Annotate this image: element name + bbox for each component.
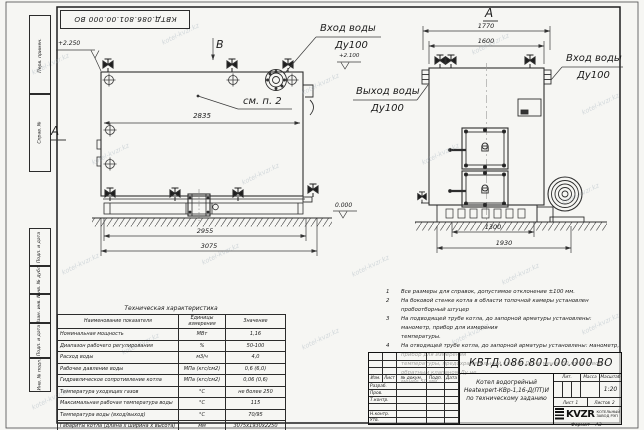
- outlet-flange-left: [422, 70, 429, 84]
- control-panel: [518, 99, 541, 116]
- spec-cell: Диапазон рабочего регулирования: [58, 340, 179, 352]
- note-number: 1: [386, 288, 401, 297]
- spec-cell: МВт: [179, 329, 226, 341]
- col-data: Дата: [445, 375, 459, 383]
- doc-number: КВТД.086.801.00.000 ВО: [459, 353, 622, 374]
- note-item: 3 На подводящей трубе котла, до запорной…: [386, 315, 620, 342]
- product-name-line: Heatexpert-КВр-1,16-Д(ПТ)И: [460, 387, 553, 395]
- frame-box-perv-primen: Перв. примен.: [29, 15, 51, 95]
- view-a-label: А: [485, 7, 493, 19]
- spec-cell: Гидравлическое сопротивление котла: [58, 375, 179, 387]
- inlet-water-dn-1: Ду100: [335, 41, 368, 51]
- spec-cell: Габариты котла (длина х ширина х высота): [58, 421, 179, 430]
- spec-cell: 115: [226, 398, 286, 410]
- spec-cell: 70/95: [226, 409, 286, 421]
- dim-1300-label: 1300: [473, 224, 513, 231]
- inlet-water-label-2: Вход воды: [566, 54, 622, 64]
- inlet-flange-right: [544, 70, 551, 84]
- dim-2835-label: 2835: [180, 113, 224, 120]
- outlet-water-label: Выход воды: [356, 87, 420, 97]
- dim-1600-label: 1600: [466, 38, 506, 45]
- row-utv: Утв.: [369, 418, 397, 424]
- dim-3075-label: 3075: [189, 243, 229, 250]
- product-name-box: Котел водогрейный Heatexpert-КВр-1,16-Д(…: [459, 373, 554, 424]
- logo-bars-icon: [555, 408, 564, 420]
- lower-door: [449, 171, 508, 207]
- col-podp: Подп.: [427, 375, 445, 383]
- spec-cell: °С: [179, 386, 226, 398]
- note-number: 3: [386, 315, 401, 342]
- spec-cell: МПа (кгс/см2): [179, 375, 226, 387]
- note-item: 2 На боковой стенке котла в области топо…: [386, 297, 620, 315]
- col-list: Лист: [383, 375, 397, 383]
- spec-cell: %: [179, 340, 226, 352]
- frame-box-podp-data-1: Подп. и дата: [29, 228, 51, 267]
- logo-text: KVZR: [566, 409, 594, 420]
- dim-2955-label: 2955: [185, 228, 225, 235]
- upper-door: [449, 128, 508, 169]
- spec-header-name: Наименование показателя: [58, 315, 179, 329]
- spec-cell: 50-100: [226, 340, 286, 352]
- see-note-2-callout: см. п. 2: [243, 97, 282, 107]
- frame-box-inv-podl: Инв. № подл.: [29, 357, 51, 392]
- frame-box-podp-data-2: Подп. и дата: [29, 322, 51, 359]
- spec-table-title: Техническая характеристика: [57, 303, 285, 314]
- frame-box-sprav-no: Справ. №: [29, 93, 51, 172]
- elevation-2100-label: +2.100: [339, 54, 359, 60]
- gas-outlet-duct: [303, 85, 314, 115]
- spec-cell: 3075х1930х2250: [226, 421, 286, 430]
- logo-subtitle: КОТЕЛЬНЫЙ ЗАВОД РЭП: [596, 410, 620, 418]
- note-number: 2: [386, 297, 401, 315]
- inlet-water-label-1: Вход воды: [320, 24, 376, 34]
- spec-cell: Номинальная мощность: [58, 329, 179, 341]
- product-name-line: Котел водогрейный: [460, 379, 553, 387]
- spec-row: Рабочее давление водыМПа (кгс/см2)0,6 (6…: [58, 363, 286, 375]
- title-block: Изм. Лист № докум. Подп. Дата Разраб. Пр…: [368, 352, 622, 425]
- view-b-label: В: [216, 39, 224, 50]
- format-label: Формат: [571, 423, 590, 428]
- dim-1770-label: 1770: [466, 23, 506, 30]
- inlet-flange-circle: [266, 70, 287, 91]
- lit-label: Лит.: [554, 373, 581, 381]
- scale-label: Масштаб: [600, 373, 621, 381]
- spec-cell: 1,16: [226, 329, 286, 341]
- spec-cell: м3/ч: [179, 352, 226, 364]
- boiler-side-view: [92, 59, 332, 227]
- spec-table-section: Техническая характеристика Наименование …: [57, 303, 285, 430]
- spec-header-value: Значение: [226, 315, 286, 329]
- spec-cell: Максимальная рабочая температура воды: [58, 398, 179, 410]
- section-a-label: А: [51, 125, 59, 137]
- elevation-0-label: 0.000: [335, 203, 352, 209]
- mass-label: Масса: [581, 373, 600, 381]
- spec-cell: Температура воды (вход/выход): [58, 409, 179, 421]
- col-izm: Изм.: [369, 375, 383, 383]
- top-stamp-number: КВТД.086.801.00.000 ВО: [74, 15, 177, 24]
- spec-cell: 0,6 (6,0): [226, 363, 286, 375]
- row-nkontr: Н.контр.: [369, 411, 397, 418]
- spec-cell: 0,06 (0,6): [226, 375, 286, 387]
- top-stamp: КВТД.086.801.00.000 ВО: [60, 10, 190, 29]
- company-logo: KVZR КОТЕЛЬНЫЙ ЗАВОД РЭП: [554, 404, 621, 424]
- spec-row: Гидравлическое сопротивление котлаМПа (к…: [58, 375, 286, 387]
- mass-value: [581, 382, 600, 397]
- side-base-frame: [103, 189, 305, 221]
- spec-header-units: Единицы измерения: [179, 315, 226, 329]
- spec-header-row: Наименование показателя Единицы измерени…: [58, 315, 286, 329]
- format-value: А3: [596, 423, 602, 428]
- spec-cell: °С: [179, 409, 226, 421]
- col-docnum: № докум.: [397, 375, 427, 383]
- spec-cell: °С: [179, 398, 226, 410]
- row-razrab: Разраб.: [369, 383, 397, 390]
- note-text: На боковой стенке котла в области топочн…: [401, 297, 620, 315]
- spec-cell: 4,0: [226, 352, 286, 364]
- drain-stub: [303, 197, 312, 202]
- spec-cell: МПа (кгс/см2): [179, 363, 226, 375]
- outlet-water-dn: Ду100: [371, 104, 404, 114]
- row-blank: [369, 404, 397, 411]
- spec-row: Номинальная мощностьМВт1,16: [58, 329, 286, 341]
- product-name-line: по техническому заданию: [460, 395, 553, 403]
- frame-box-inv-dubl: Инв. № дубл.: [29, 265, 51, 295]
- spec-row: Температура уходящих газов°Сне более 250: [58, 386, 286, 398]
- row-tkontr: Т.контр.: [369, 397, 397, 404]
- spec-cell: мм: [179, 421, 226, 430]
- drawing-sheet: kotel-kvzr.kz kotel-kvzr.kz kotel-kvzr.k…: [0, 0, 644, 430]
- boiler-front-view: [415, 55, 607, 231]
- spec-row: Температура воды (вход/выход)°С70/95: [58, 409, 286, 421]
- spec-row: Диапазон рабочего регулирования%50-100: [58, 340, 286, 352]
- note-item: 1 Все размеры для справок, допустимое от…: [386, 288, 620, 297]
- scale-value: 1:20: [600, 382, 621, 397]
- spec-cell: Рабочее давление воды: [58, 363, 179, 375]
- logo-subtitle-line: ЗАВОД РЭП: [596, 414, 620, 418]
- note-text: температуры.: [401, 333, 620, 342]
- front-base-frame: [437, 205, 537, 222]
- spec-cell: Расход воды: [58, 352, 179, 364]
- note-text: Все размеры для справок, допустимое откл…: [401, 288, 620, 297]
- spec-table: Наименование показателя Единицы измерени…: [57, 314, 286, 430]
- dim-1930-label: 1930: [484, 240, 524, 247]
- title-block-signature-grid: Изм. Лист № докум. Подп. Дата Разраб. Пр…: [369, 353, 459, 424]
- inlet-water-dn-2: Ду100: [577, 71, 610, 81]
- spec-row: Расход водым3/ч4,0: [58, 352, 286, 364]
- spec-cell: Температура уходящих газов: [58, 386, 179, 398]
- spec-cell: не более 250: [226, 386, 286, 398]
- elevation-2250-label: +2.250: [58, 41, 80, 47]
- format-note: Формат А3: [571, 423, 602, 428]
- note-text: На подводящей трубе котла, до запорной а…: [401, 315, 620, 333]
- frame-box-vzam-inv: Взам. инв. №: [29, 293, 51, 324]
- spec-row: Максимальная рабочая температура воды°С1…: [58, 398, 286, 410]
- row-prov: Пров.: [369, 390, 397, 397]
- spec-row: Габариты котла (длина х ширина х высота)…: [58, 421, 286, 430]
